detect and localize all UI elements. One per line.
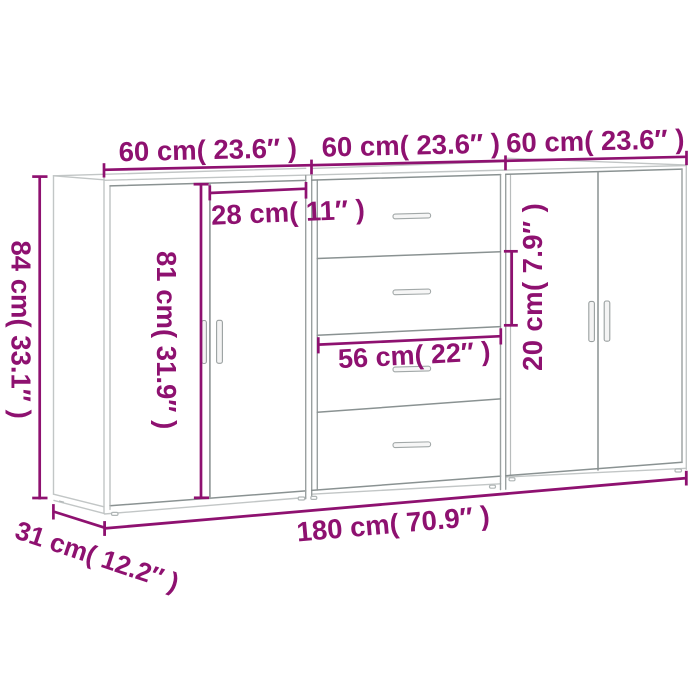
svg-text:28 cm( 11″ ): 28 cm( 11″ ) [210, 194, 365, 231]
svg-text:60 cm( 23.6″ ): 60 cm( 23.6″ ) [506, 123, 685, 158]
svg-text:84 cm( 33.1″ ): 84 cm( 33.1″ ) [6, 241, 37, 419]
svg-text:81 cm( 31.9″ ): 81 cm( 31.9″ ) [151, 251, 182, 429]
svg-text:60 cm( 23.6″ ): 60 cm( 23.6″ ) [118, 132, 297, 167]
svg-text:60 cm( 23.6″ ): 60 cm( 23.6″ ) [321, 128, 500, 163]
svg-text:20 cm( 7.9″ ): 20 cm( 7.9″ ) [517, 203, 548, 371]
